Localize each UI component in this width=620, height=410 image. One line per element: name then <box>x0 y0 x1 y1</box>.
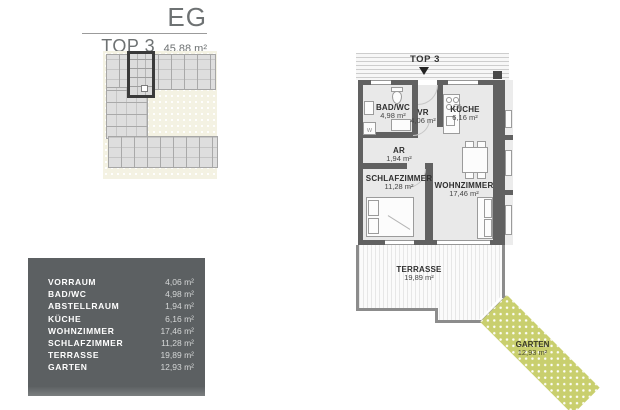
wall-bedroom-top <box>358 163 407 169</box>
row-value: 4,98 m² <box>165 289 194 299</box>
row-value: 19,89 m² <box>160 350 194 360</box>
neighbor-furniture <box>505 110 512 128</box>
floor-label: EG <box>82 2 207 33</box>
kitchen-window <box>448 80 478 85</box>
neighbor-furniture <box>505 150 512 176</box>
table-row: WOHNZIMMER17,46 m² <box>48 325 194 337</box>
site-building-top <box>106 54 216 90</box>
entrance-arrow-icon <box>419 67 429 75</box>
row-value: 6,16 m² <box>165 314 194 324</box>
living-terrace-door <box>437 240 490 245</box>
row-label: TERRASSE <box>48 350 99 360</box>
pillow-icon <box>368 218 379 234</box>
walkway-pillar <box>493 71 502 79</box>
header-divider <box>82 33 207 34</box>
table-row: ABSTELLRAUM1,94 m² <box>48 300 194 312</box>
chair-icon <box>465 172 474 179</box>
room-label-kueche: KÜCHE 6,16 m² <box>440 105 490 123</box>
neighbor-wall-stub <box>505 190 513 195</box>
entrance-label: TOP 3 <box>398 54 452 65</box>
room-label-ar: AR 1,94 m² <box>374 146 424 164</box>
room-label-terrasse: TERRASSE 19,89 m² <box>378 265 460 283</box>
row-label: BAD/WC <box>48 289 87 299</box>
site-overview-map <box>103 51 217 179</box>
terrace-wall <box>356 245 359 311</box>
terrace-wall <box>502 245 505 298</box>
row-label: GARTEN <box>48 362 88 372</box>
room-label-wohnzimmer: WOHNZIMMER 17,46 m² <box>423 181 505 199</box>
table-row: BAD/WC4,98 m² <box>48 288 194 300</box>
row-value: 4,06 m² <box>165 277 194 287</box>
bedroom-window <box>385 240 414 245</box>
terrace-wall <box>356 308 438 311</box>
bath-window <box>371 80 391 85</box>
row-label: ABSTELLRAUM <box>48 301 119 311</box>
garden-strip: GARTEN 12,93 m² <box>480 295 600 410</box>
chair-icon <box>477 172 486 179</box>
unit-highlight-dot <box>141 85 148 92</box>
sofa-cushion <box>484 199 492 218</box>
site-building-bottom <box>108 136 218 168</box>
pillow-icon <box>368 200 379 216</box>
row-value: 11,28 m² <box>161 338 194 348</box>
area-table: VORRAUM4,06 m² BAD/WC4,98 m² ABSTELLRAUM… <box>28 258 205 396</box>
table-row: VORRAUM4,06 m² <box>48 276 194 288</box>
table-row: TERRASSE19,89 m² <box>48 349 194 361</box>
table-row: SCHLAFZIMMER11,28 m² <box>48 337 194 349</box>
row-value: 17,46 m² <box>160 326 194 336</box>
row-label: KÜCHE <box>48 314 81 324</box>
row-label: SCHLAFZIMMER <box>48 338 123 348</box>
terrace-wall <box>435 320 482 323</box>
table-row: GARTEN12,93 m² <box>48 361 194 373</box>
room-label-garten: GARTEN 12,93 m² <box>502 340 564 358</box>
area-table-rows: VORRAUM4,06 m² BAD/WC4,98 m² ABSTELLRAUM… <box>28 258 205 374</box>
washing-machine-label: W <box>363 125 376 138</box>
sofa-cushion <box>484 219 492 237</box>
row-value: 12,93 m² <box>160 362 194 372</box>
row-value: 1,94 m² <box>165 301 194 311</box>
neighbor-wall-stub <box>505 135 513 140</box>
dining-table-icon <box>462 147 488 173</box>
row-label: VORRAUM <box>48 277 96 287</box>
unit-highlight-marker <box>127 51 155 98</box>
row-label: WOHNZIMMER <box>48 326 114 336</box>
neighbor-furniture <box>505 205 512 235</box>
table-row: KÜCHE6,16 m² <box>48 313 194 325</box>
floorplan-page: EG TOP 3 45,88 m² VORRAUM4,06 m² BAD/WC4… <box>0 0 620 410</box>
